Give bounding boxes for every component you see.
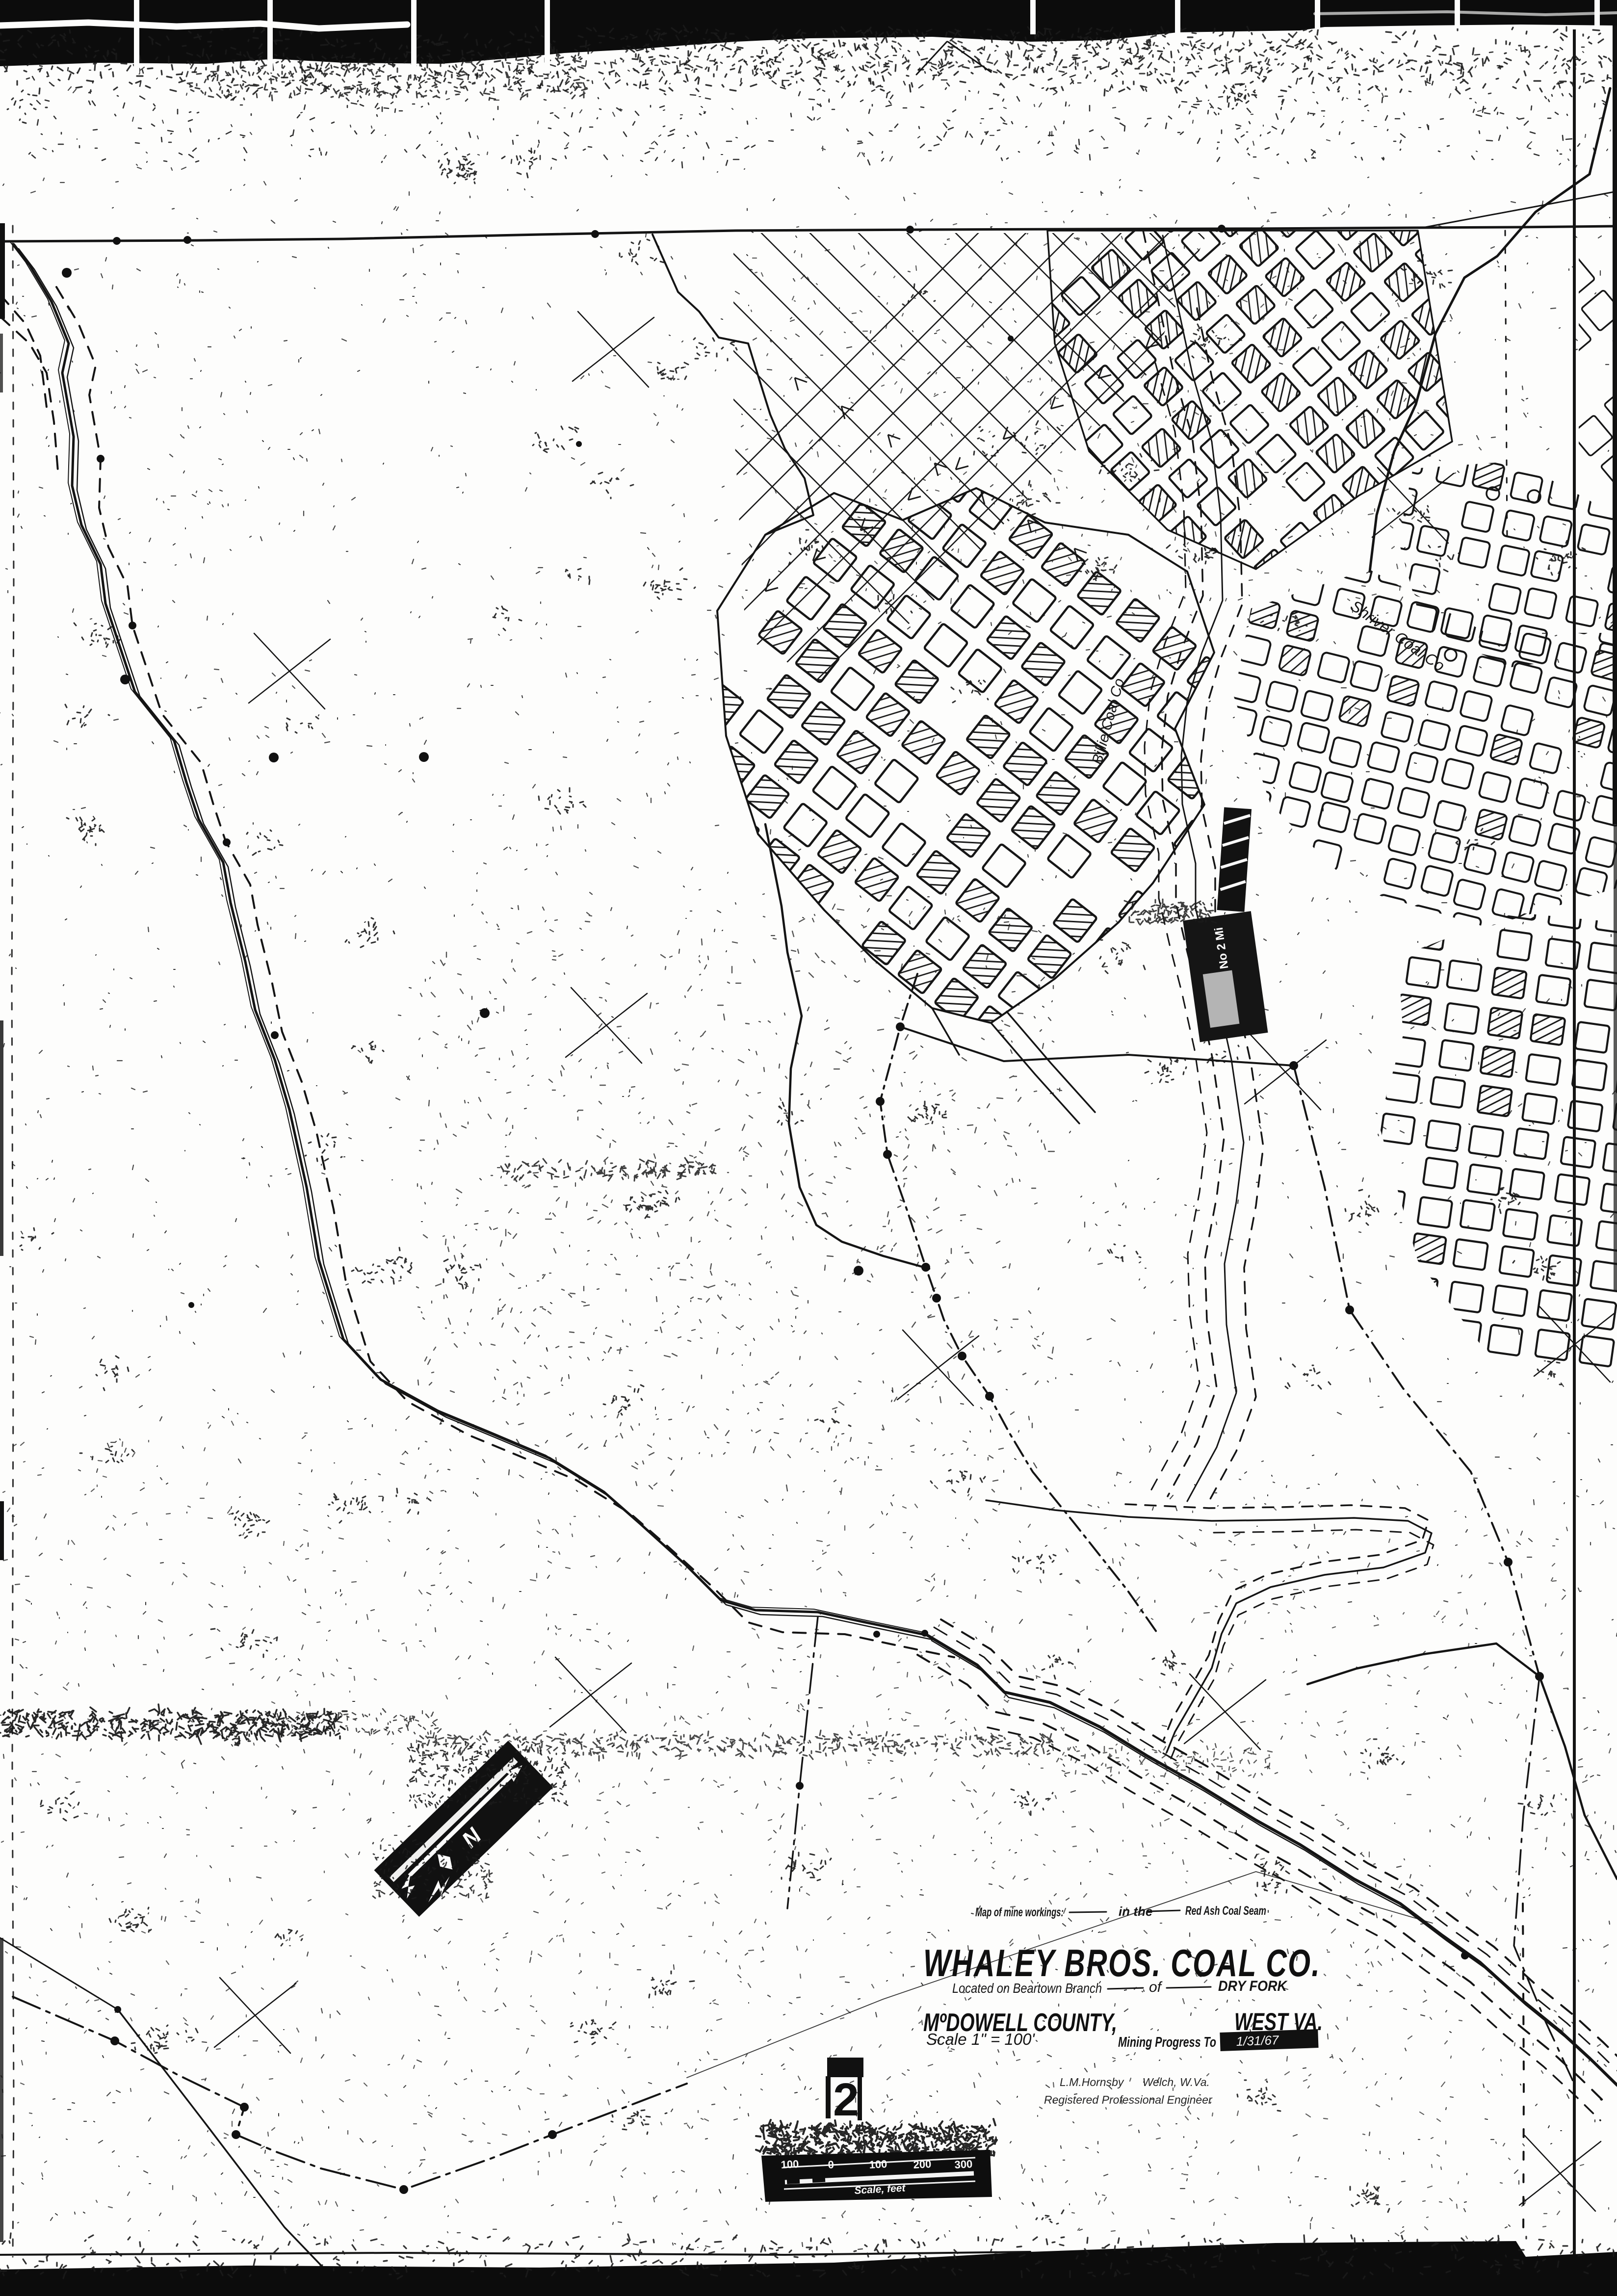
svg-text:Located on Beartown Branch: Located on Beartown Branch: [952, 1981, 1102, 1996]
svg-text:2: 2: [833, 2074, 859, 2126]
svg-text:Map of mine workings:: Map of mine workings:: [975, 1905, 1064, 1919]
svg-text:100: 100: [869, 2158, 887, 2171]
svg-text:Mining Progress To: Mining Progress To: [1118, 2035, 1216, 2050]
svg-text:300: 300: [954, 2158, 973, 2171]
svg-text:Registered Professional Engine: Registered Professional Engineer: [1044, 2093, 1213, 2106]
svg-text:200: 200: [913, 2158, 932, 2171]
svg-text:100: 100: [781, 2158, 799, 2171]
svg-text:Red Ash Coal Seam: Red Ash Coal Seam: [1185, 1904, 1266, 1918]
svg-text:of: of: [1149, 1979, 1163, 1995]
svg-text:1/31/67: 1/31/67: [1236, 2033, 1279, 2049]
svg-text:0: 0: [828, 2158, 835, 2171]
svg-text:L.M.Hornsby Welch, W.Va.: L.M.Hornsby Welch, W.Va.: [1060, 2076, 1210, 2088]
svg-text:Scale 1" = 100': Scale 1" = 100': [926, 2030, 1035, 2048]
svg-text:DRY FORK: DRY FORK: [1218, 1978, 1288, 1994]
